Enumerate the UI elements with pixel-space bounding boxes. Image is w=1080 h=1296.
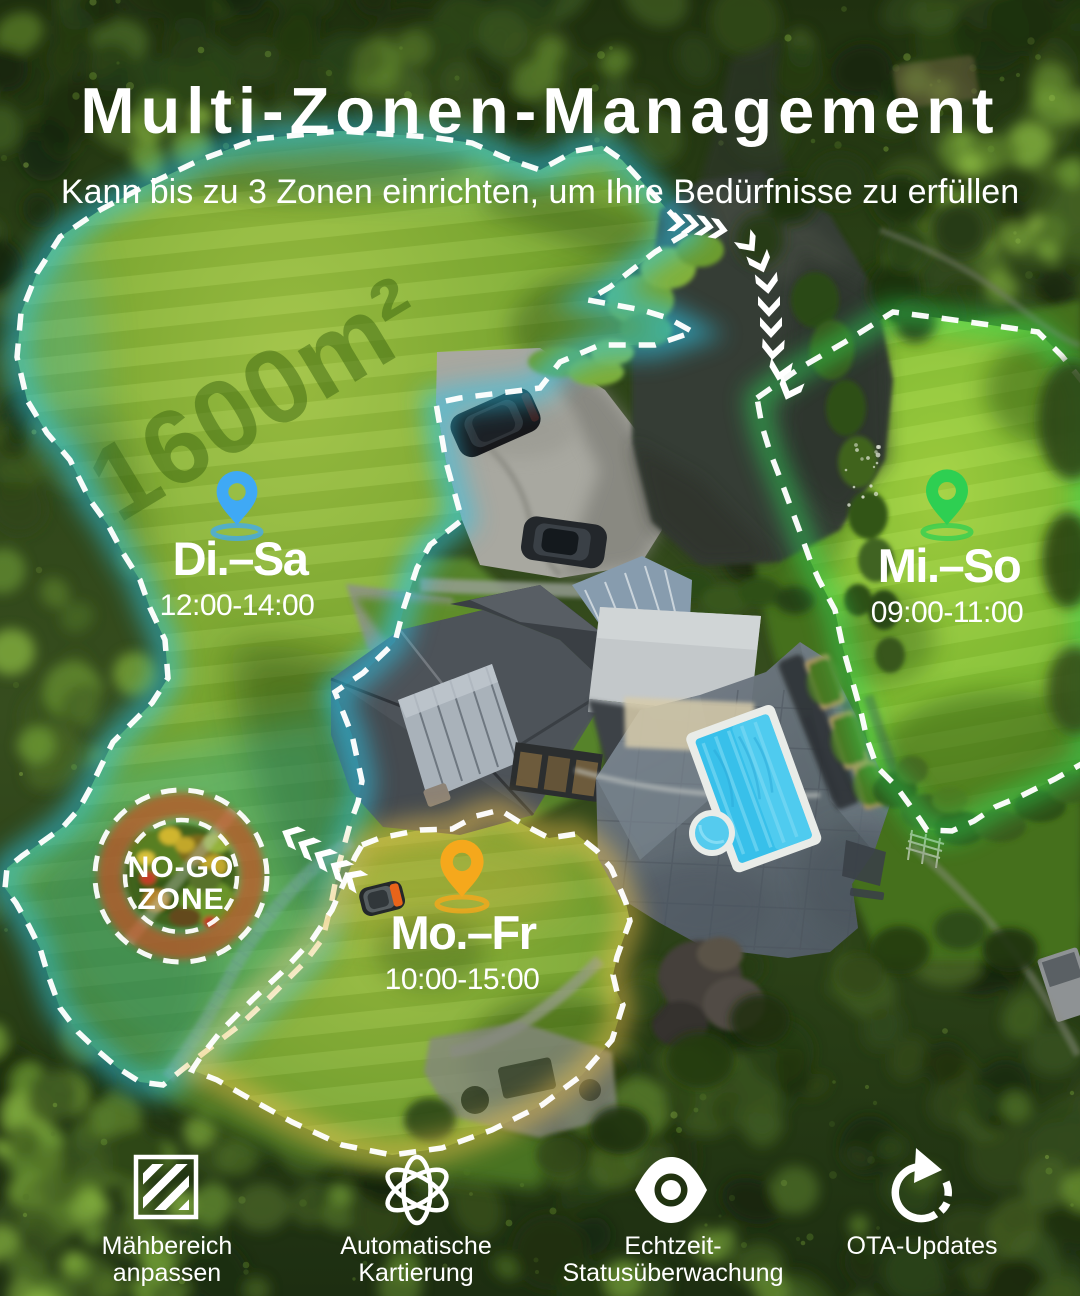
svg-text:10:00-15:00: 10:00-15:00 xyxy=(385,963,540,996)
svg-text:Mähbereich: Mähbereich xyxy=(102,1232,233,1260)
svg-text:12:00-14:00: 12:00-14:00 xyxy=(160,589,315,622)
svg-text:Kartierung: Kartierung xyxy=(358,1259,473,1287)
svg-text:09:00-11:00: 09:00-11:00 xyxy=(871,596,1023,629)
svg-text:Echtzeit-: Echtzeit- xyxy=(624,1232,721,1260)
svg-text:OTA-Updates: OTA-Updates xyxy=(847,1232,998,1260)
svg-text:Multi-Zonen-Management: Multi-Zonen-Management xyxy=(80,74,999,147)
svg-text:Kann bis zu 3 Zonen einrichten: Kann bis zu 3 Zonen einrichten, um Ihre … xyxy=(61,173,1019,211)
svg-text:Di.–Sa: Di.–Sa xyxy=(173,532,310,585)
svg-text:Mi.–So: Mi.–So xyxy=(878,539,1020,592)
svg-text:Mo.–Fr: Mo.–Fr xyxy=(390,906,536,959)
svg-text:Statusüberwachung: Statusüberwachung xyxy=(563,1259,784,1287)
svg-text:NO-GO: NO-GO xyxy=(128,851,235,884)
svg-text:Automatische: Automatische xyxy=(340,1232,491,1260)
svg-text:anpassen: anpassen xyxy=(113,1259,221,1287)
svg-text:ZONE: ZONE xyxy=(137,883,224,916)
